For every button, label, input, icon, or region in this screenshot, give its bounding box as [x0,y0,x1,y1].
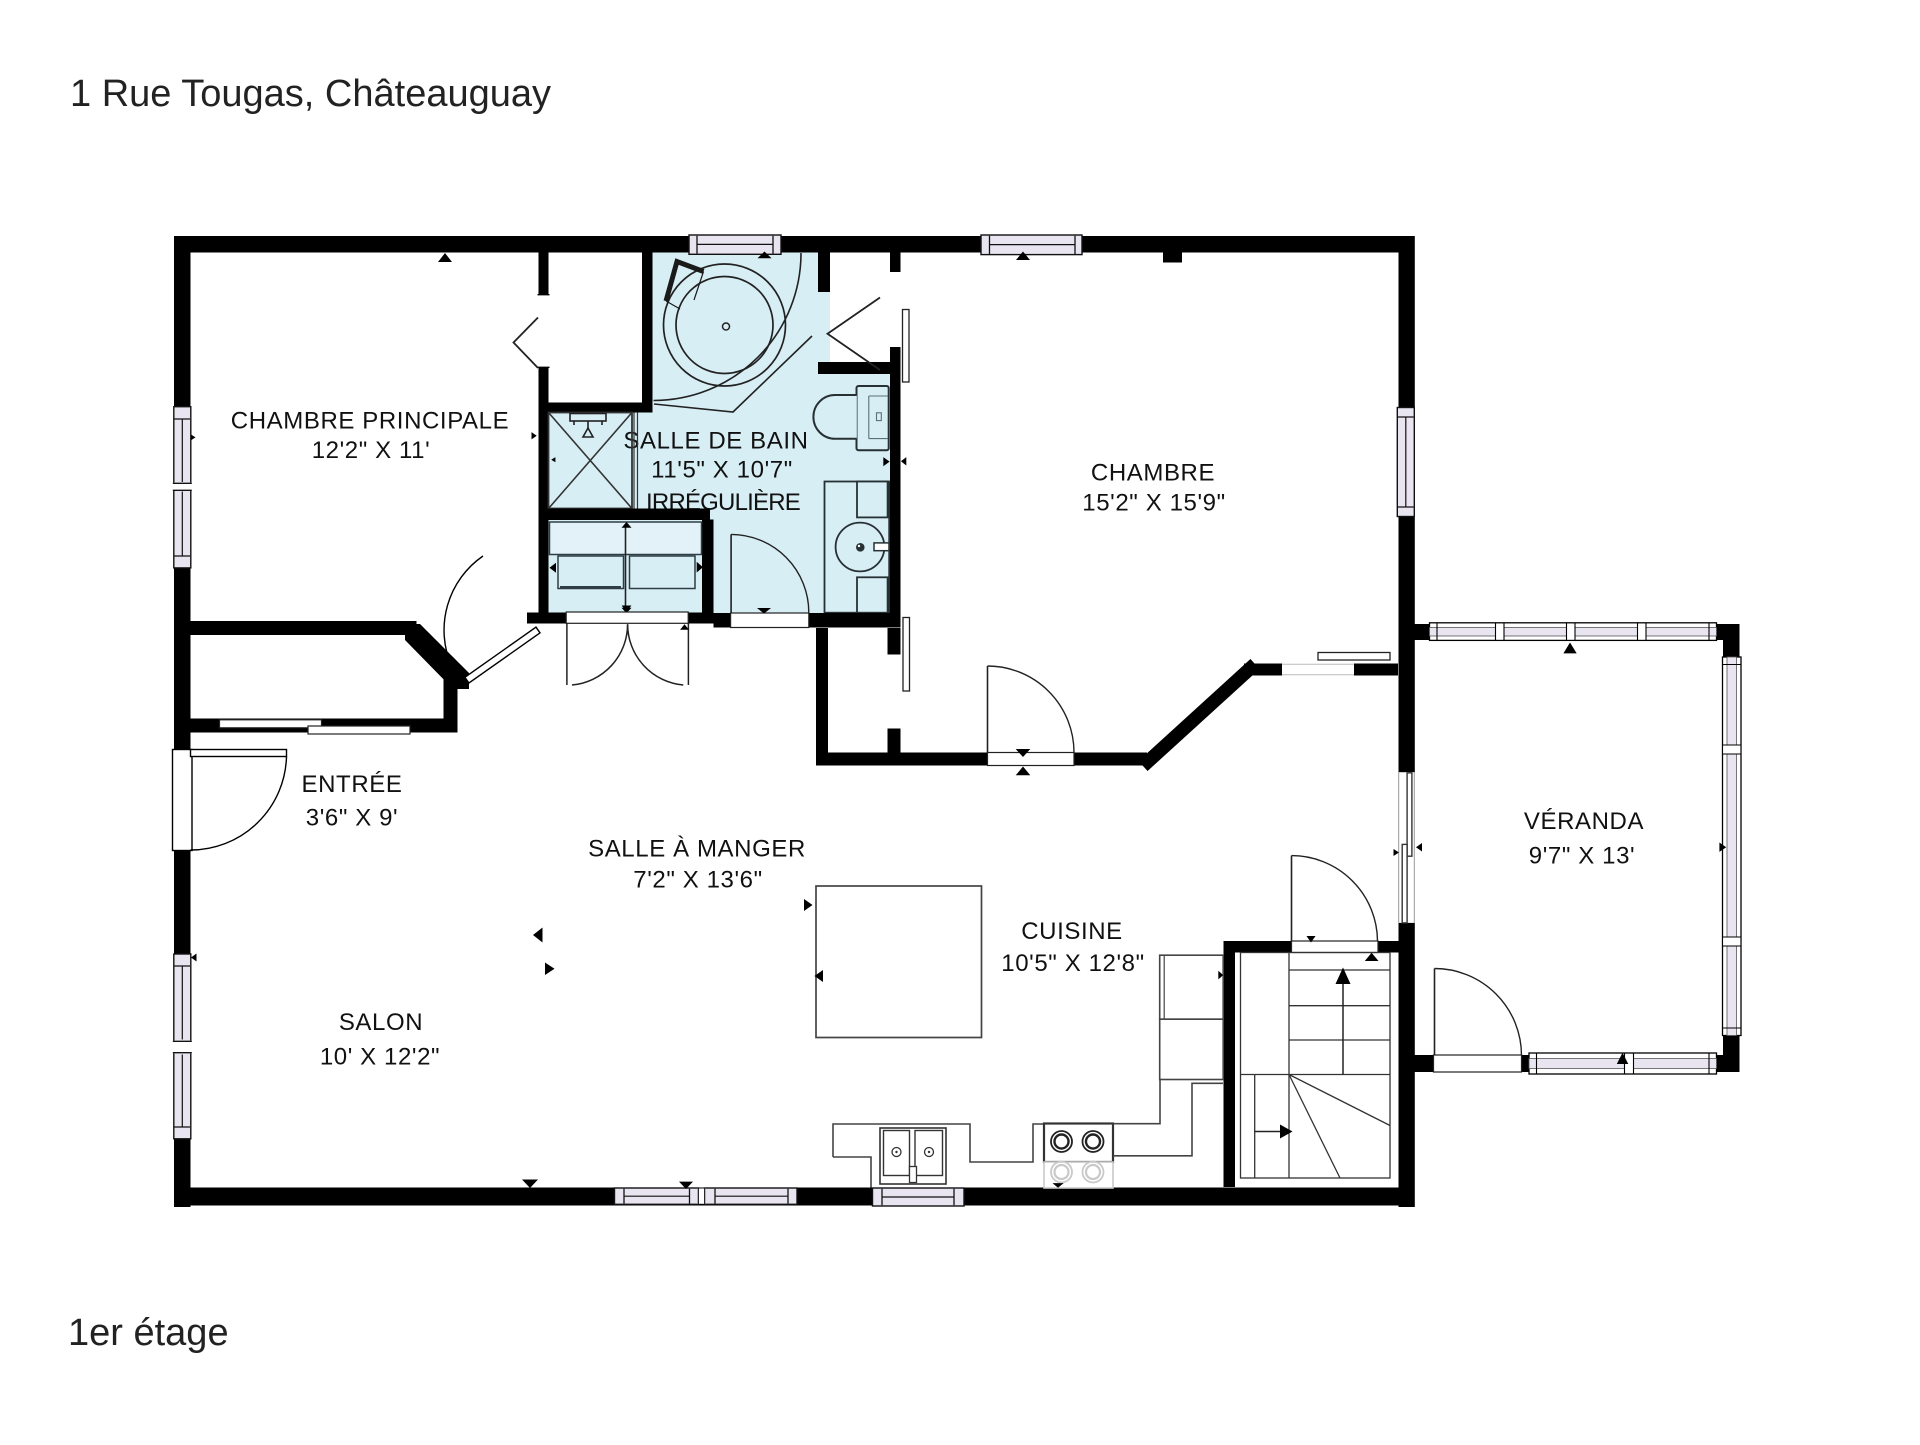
svg-text:10' X 12'2": 10' X 12'2" [320,1044,440,1071]
svg-text:7'2" X 13'6": 7'2" X 13'6" [633,867,763,894]
svg-text:SALON: SALON [339,1009,423,1036]
svg-text:12'2" X 11': 12'2" X 11' [312,437,431,464]
svg-text:CUISINE: CUISINE [1021,918,1123,945]
svg-text:10'5" X 12'8": 10'5" X 12'8" [1001,950,1144,977]
svg-text:15'2" X 15'9": 15'2" X 15'9" [1082,490,1225,517]
svg-text:SALLE À MANGER: SALLE À MANGER [588,836,806,863]
svg-text:1 Rue Tougas, Châteauguay: 1 Rue Tougas, Châteauguay [70,73,551,115]
svg-text:CHAMBRE PRINCIPALE: CHAMBRE PRINCIPALE [231,408,509,435]
svg-text:11'5" X 10'7": 11'5" X 10'7" [651,457,793,484]
svg-text:3'6" X 9': 3'6" X 9' [306,805,398,832]
svg-text:ENTRÉE: ENTRÉE [302,771,403,798]
svg-text:1er étage: 1er étage [68,1312,229,1354]
svg-text:VÉRANDA: VÉRANDA [1524,808,1644,835]
svg-text:SALLE DE BAIN: SALLE DE BAIN [623,428,808,455]
svg-text:9'7" X 13': 9'7" X 13' [1529,843,1635,870]
svg-text:CHAMBRE: CHAMBRE [1091,460,1215,487]
